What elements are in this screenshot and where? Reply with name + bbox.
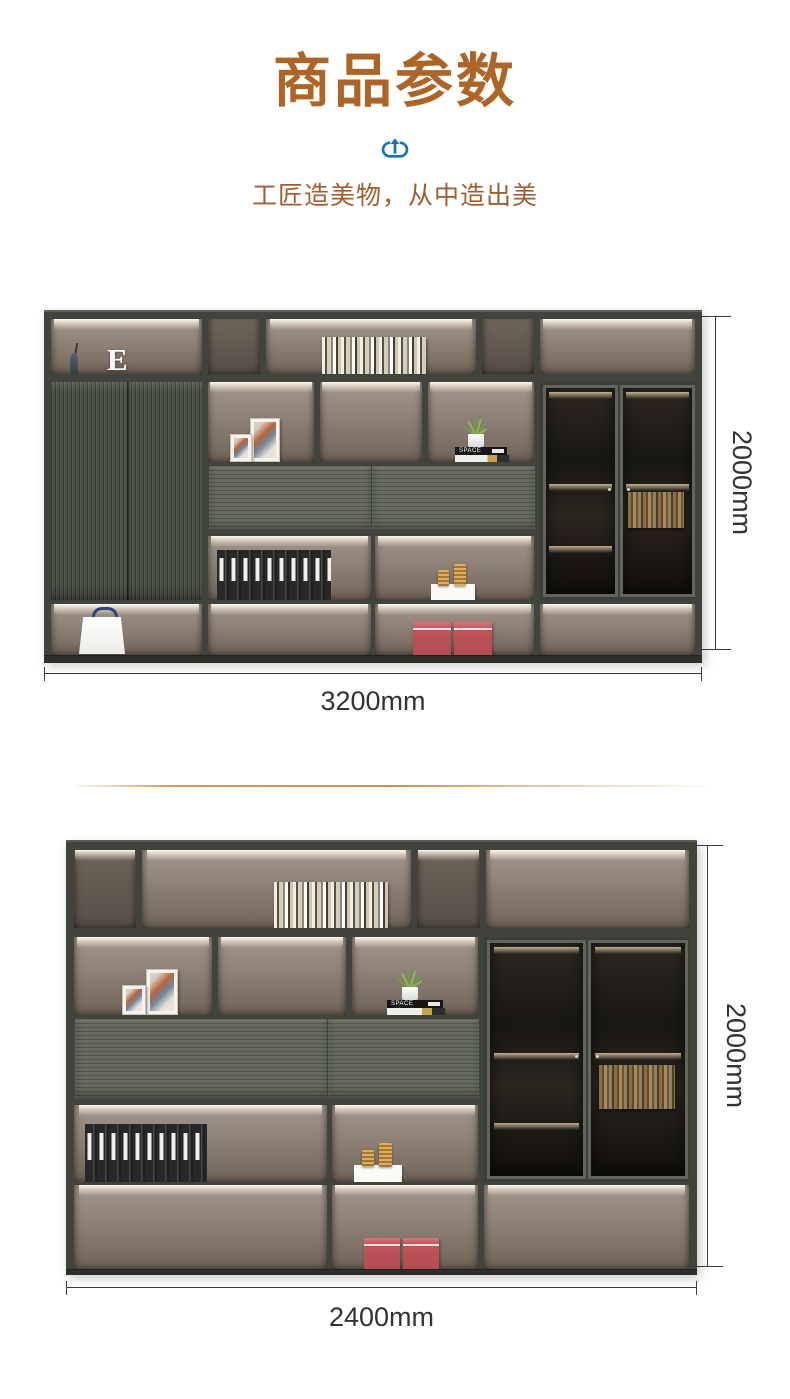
picture-frame-decor	[146, 969, 178, 1015]
product-figure-2400: SPACE	[66, 840, 790, 1360]
glass-door	[620, 385, 695, 597]
led-strip	[210, 382, 312, 393]
shopping-bag-decor	[79, 617, 125, 654]
shelf-compartment	[208, 536, 371, 600]
led-strip	[221, 937, 344, 948]
led-strip	[418, 850, 478, 861]
led-strip	[54, 319, 199, 330]
shelf-compartment	[74, 1105, 327, 1182]
led-strip	[79, 1185, 322, 1196]
led-strip	[430, 382, 532, 393]
gold-jar-decor	[379, 1143, 392, 1167]
bookcase-3200-image: E SP	[44, 310, 702, 662]
led-strip	[75, 850, 135, 861]
product-figure-3200: E SP	[44, 310, 790, 730]
section-divider	[76, 785, 710, 787]
shelf-compartment	[375, 536, 534, 600]
letter-decor: E	[107, 342, 128, 374]
bookcase-2400-image: SPACE	[66, 840, 697, 1274]
led-strip	[335, 1185, 475, 1196]
file-binders-decor	[217, 550, 331, 600]
led-strip	[322, 382, 420, 393]
gold-jar-decor	[454, 564, 466, 586]
shelf-compartment	[208, 382, 314, 462]
glass-cabinet	[540, 382, 695, 600]
shelf-compartment	[218, 937, 346, 1015]
drawer-front	[74, 1019, 328, 1099]
led-strip	[211, 536, 367, 547]
shelf-compartment	[540, 319, 695, 374]
width-dimension-line	[44, 673, 702, 674]
height-dimension-line	[707, 845, 708, 1267]
led-strip	[543, 604, 692, 615]
books-decor	[322, 337, 426, 374]
cabinet-base	[66, 1269, 697, 1275]
shelf-compartment	[484, 1185, 689, 1269]
file-binders-decor	[85, 1124, 207, 1182]
shelf-compartment	[320, 382, 422, 462]
product-parameters-section: 商品参数 工匠造美物，从中造出美 E	[0, 0, 790, 1399]
led-strip	[270, 319, 472, 330]
shelf-compartment	[208, 604, 371, 655]
width-dimension-label: 2400mm	[66, 1302, 697, 1333]
red-boxes-decor	[364, 1238, 439, 1269]
upload-icon	[382, 137, 409, 158]
plant-decor	[466, 403, 486, 447]
shelf-compartment	[540, 604, 695, 655]
led-strip	[147, 850, 405, 861]
shelf-compartment	[208, 319, 260, 374]
picture-frame-decor	[122, 985, 146, 1015]
space-books-decor: SPACE	[387, 1000, 443, 1015]
led-strip	[77, 937, 209, 948]
shelf-compartment	[486, 850, 689, 928]
gold-jar-decor	[362, 1150, 374, 1167]
shelf-compartment	[375, 604, 534, 655]
width-dimension-label: 3200mm	[44, 686, 702, 717]
shelf-compartment: SPACE	[428, 382, 534, 462]
cabinet-base	[44, 655, 702, 663]
drawer-front	[371, 466, 535, 532]
led-strip	[378, 536, 531, 547]
picture-frame-decor	[230, 434, 252, 462]
space-books-decor: SPACE	[455, 447, 507, 462]
shelf-compartment	[74, 850, 136, 928]
shelf-compartment: SPACE	[352, 937, 478, 1015]
glass-door	[543, 385, 618, 597]
books-decor	[599, 1065, 675, 1109]
glass-door	[588, 940, 688, 1179]
led-strip	[54, 604, 199, 615]
display-box-decor	[354, 1165, 402, 1182]
led-strip	[488, 1185, 685, 1196]
shelf-compartment	[332, 1185, 478, 1269]
drawer-front	[208, 466, 372, 532]
page-subtitle: 工匠造美物，从中造出美	[0, 176, 790, 212]
shelf-compartment	[332, 1105, 478, 1182]
led-strip	[543, 319, 692, 330]
books-decor	[274, 882, 388, 928]
cabinet-doors	[51, 382, 202, 600]
glass-cabinet	[484, 937, 689, 1182]
plant-decor	[400, 954, 420, 1000]
gold-jar-decor	[438, 570, 449, 586]
led-strip	[79, 1105, 322, 1116]
books-decor	[628, 492, 684, 528]
height-dimension-label: 2000mm	[721, 316, 757, 650]
height-dimension-line	[715, 316, 716, 650]
page-title: 商品参数	[0, 34, 790, 118]
width-dimension-line	[66, 1287, 697, 1288]
shelf-compartment	[266, 319, 476, 374]
display-box-decor	[431, 584, 475, 600]
picture-frame-decor	[250, 418, 280, 462]
shelf-compartment: E	[51, 319, 202, 374]
diffuser-vase-decor	[68, 353, 80, 374]
height-dimension-label: 2000mm	[715, 845, 751, 1267]
glass-door	[487, 940, 586, 1179]
shelf-compartment	[142, 850, 411, 928]
led-strip	[490, 850, 685, 861]
shelf-compartment	[51, 604, 202, 655]
shelf-compartment	[482, 319, 534, 374]
shelf-compartment	[74, 937, 212, 1015]
led-strip	[355, 937, 476, 948]
led-strip	[378, 604, 531, 615]
led-strip	[335, 1105, 475, 1116]
shelf-compartment	[417, 850, 480, 928]
drawer-front	[327, 1019, 479, 1099]
red-boxes-decor	[413, 622, 492, 655]
led-strip	[211, 604, 367, 615]
shelf-compartment	[74, 1185, 327, 1269]
